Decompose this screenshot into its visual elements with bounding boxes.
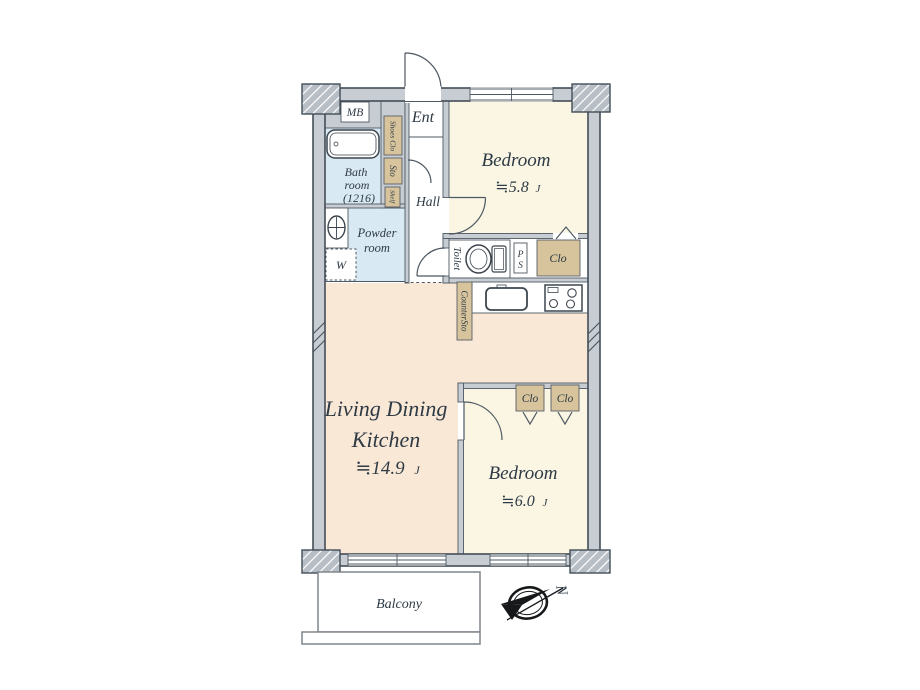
storage-label: Sto [388, 165, 398, 177]
bedroom1-label: Bedroom [482, 150, 551, 171]
shoes-closet-label: Shoes Clo [389, 121, 398, 151]
toilet-wall-stub-bottom [443, 276, 449, 283]
balcony-slab [302, 632, 480, 644]
floor-plan-page: Bedroom ≒5.8 J Bedroom ≒6.0 J Living Din… [0, 0, 920, 690]
ldk-size-unit: J [414, 463, 420, 477]
hall-label: Hall [415, 194, 440, 209]
pillar-top-right [572, 84, 610, 112]
ldk-label-line2: Kitchen [351, 427, 420, 452]
window-bedroom2 [490, 554, 566, 566]
entrance-door [405, 53, 441, 89]
hall-left-wall [405, 101, 409, 283]
bedroom1-size: ≒5.8 [495, 179, 528, 196]
entrance-opening [405, 87, 441, 104]
bath-label-line2: room [345, 178, 370, 192]
pillar-bottom-right [570, 550, 610, 573]
floor-plan: Bedroom ≒5.8 J Bedroom ≒6.0 J Living Din… [0, 0, 920, 690]
pillar-bottom-left [302, 550, 340, 573]
hall-bedroom1-wall [443, 101, 449, 198]
hall-closet-label: Clo [549, 251, 566, 265]
bedroom2-wall-stub-top [458, 383, 464, 402]
washer-label: W [336, 258, 347, 272]
pipe-space-label-s: S [518, 261, 523, 271]
powder-label-line2: room [364, 241, 390, 255]
right-wall [588, 88, 600, 566]
bedroom2-closet-right-label: Clo [557, 393, 574, 405]
counter-storage-label: CounterSto [460, 290, 470, 332]
top-wall [313, 88, 600, 101]
ldk-label-line1: Living Dining [324, 396, 448, 421]
bedroom2-left-wall [458, 440, 464, 554]
bedroom2-closet-left-label: Clo [522, 393, 539, 405]
bedroom2-label: Bedroom [489, 463, 558, 484]
washbasin-icon [328, 216, 345, 239]
compass-north-label: N [552, 583, 570, 598]
bath-label-line1: Bath [345, 165, 368, 179]
pipe-space-label-p: P [517, 250, 524, 260]
stove-icon [545, 285, 582, 311]
bathtub-icon [327, 130, 379, 158]
window-ldk [348, 554, 446, 566]
toilet-wall-stub-top [443, 239, 449, 249]
bath-label-line3: (1216) [343, 191, 375, 205]
powder-label-line1: Powder [357, 226, 397, 240]
pillar-top-left [302, 84, 340, 114]
toilet-label: Toilet [451, 247, 462, 272]
shelf-label: Shelf [389, 190, 396, 204]
balcony-label: Balcony [376, 597, 423, 612]
bedroom2-size: ≒6.0 [501, 493, 534, 510]
kitchen-sink-icon [486, 285, 527, 310]
kitchen [472, 282, 588, 313]
left-wall [313, 88, 325, 566]
ldk-size: ≒14.9 [355, 458, 405, 479]
meter-box-label: MB [346, 107, 364, 119]
window-bedroom1 [470, 87, 553, 102]
ent-label: Ent [411, 109, 435, 126]
toilet-icon [466, 245, 506, 273]
